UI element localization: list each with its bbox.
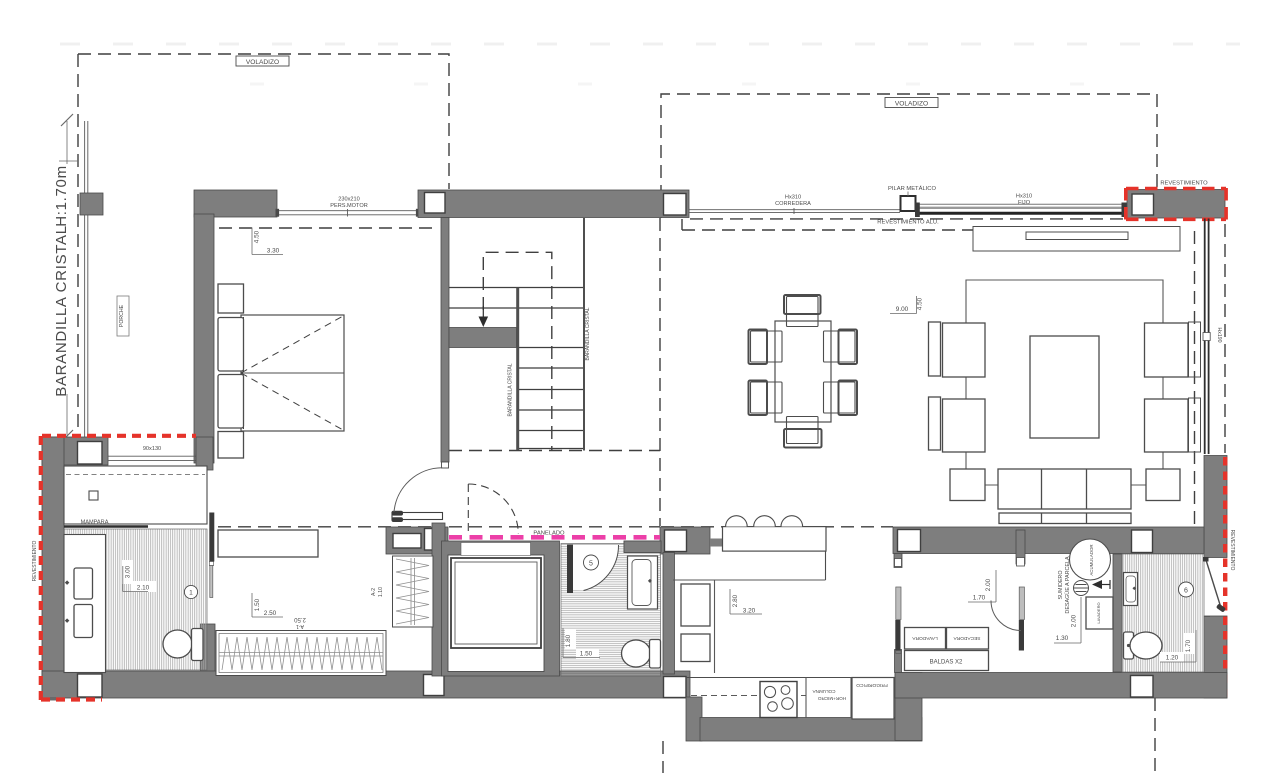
svg-text:2.80: 2.80: [732, 594, 739, 607]
svg-text:2.10: 2.10: [137, 585, 150, 592]
svg-text:FIJO: FIJO: [1018, 200, 1031, 206]
svg-text:1.50: 1.50: [580, 651, 593, 658]
svg-text:3.20: 3.20: [743, 608, 756, 615]
svg-text:BARANDILLA CRISTAL: BARANDILLA CRISTAL: [53, 225, 70, 397]
svg-text:SECADORA: SECADORA: [953, 635, 981, 641]
svg-text:1: 1: [189, 590, 193, 597]
svg-text:2.00: 2.00: [985, 578, 992, 591]
svg-text:BARANDILLA CRISTAL: BARANDILLA CRISTAL: [508, 363, 514, 416]
svg-text:1.80: 1.80: [565, 634, 572, 647]
svg-text:A-1: A-1: [296, 623, 304, 629]
svg-text:DESAGÜE A PARCELA: DESAGÜE A PARCELA: [1064, 556, 1071, 614]
svg-text:Hx310: Hx310: [1016, 194, 1032, 200]
svg-text:Hx310: Hx310: [785, 195, 801, 201]
svg-text:3.30: 3.30: [267, 248, 280, 255]
svg-text:90x130: 90x130: [143, 446, 161, 452]
svg-text:MAMPARA: MAMPARA: [81, 520, 109, 526]
svg-text:REVESTIMIENTO: REVESTIMIENTO: [1160, 181, 1208, 187]
svg-text:5: 5: [589, 560, 593, 567]
svg-text:CORREDERA: CORREDERA: [775, 201, 811, 207]
svg-text:SUMIDERO: SUMIDERO: [1058, 570, 1064, 599]
svg-text:1.50: 1.50: [254, 598, 261, 611]
svg-text:BALDAS X2: BALDAS X2: [930, 660, 963, 666]
svg-text:1.10: 1.10: [378, 587, 384, 597]
svg-text:LAVADERO: LAVADERO: [1096, 602, 1101, 623]
svg-text:PORCHE: PORCHE: [119, 304, 125, 327]
svg-text:4.50: 4.50: [917, 297, 924, 310]
svg-text:REVESTIMIENTO: REVESTIMIENTO: [32, 541, 38, 582]
svg-text:230x210: 230x210: [338, 197, 359, 203]
svg-text:A-2: A-2: [371, 588, 377, 596]
svg-text:1.70: 1.70: [1185, 639, 1192, 652]
svg-text:1.20: 1.20: [1166, 655, 1179, 662]
svg-text:3.00: 3.00: [125, 565, 132, 578]
svg-text:Hx190: Hx190: [1216, 328, 1222, 343]
svg-text:VOLADIZO: VOLADIZO: [895, 100, 928, 107]
svg-text:REVESTIMIENTO ALU.: REVESTIMIENTO ALU.: [877, 220, 939, 226]
svg-text:COLUMNA: COLUMNA: [812, 689, 836, 694]
svg-text:FRIGORIFICO: FRIGORIFICO: [856, 682, 888, 688]
svg-text:2.50: 2.50: [264, 610, 277, 617]
svg-text:6: 6: [1184, 587, 1188, 594]
svg-text:ACUMULADOR: ACUMULADOR: [1089, 544, 1094, 575]
svg-text:PERS.MOTOR: PERS.MOTOR: [330, 203, 368, 209]
svg-text:4.50: 4.50: [254, 230, 261, 243]
svg-text:LAVADORA: LAVADORA: [911, 635, 937, 641]
svg-text:PANELADO: PANELADO: [533, 531, 565, 537]
svg-text:PILAR METÁLICO: PILAR METÁLICO: [888, 185, 936, 192]
svg-text:VOLADIZO: VOLADIZO: [246, 59, 279, 66]
svg-text:H:1.70m: H:1.70m: [53, 165, 70, 227]
svg-text:2.00: 2.00: [1071, 614, 1078, 627]
svg-text:HOR+MICRO: HOR+MICRO: [817, 696, 846, 701]
svg-text:REVESTIMIENTO: REVESTIMIENTO: [1229, 530, 1235, 571]
svg-text:1.30: 1.30: [1056, 635, 1069, 642]
svg-text:1.70: 1.70: [973, 595, 986, 602]
svg-text:2.50: 2.50: [294, 616, 306, 622]
svg-text:9.00: 9.00: [896, 306, 909, 313]
svg-text:BARANDILLA CRISTAL: BARANDILLA CRISTAL: [585, 307, 591, 360]
